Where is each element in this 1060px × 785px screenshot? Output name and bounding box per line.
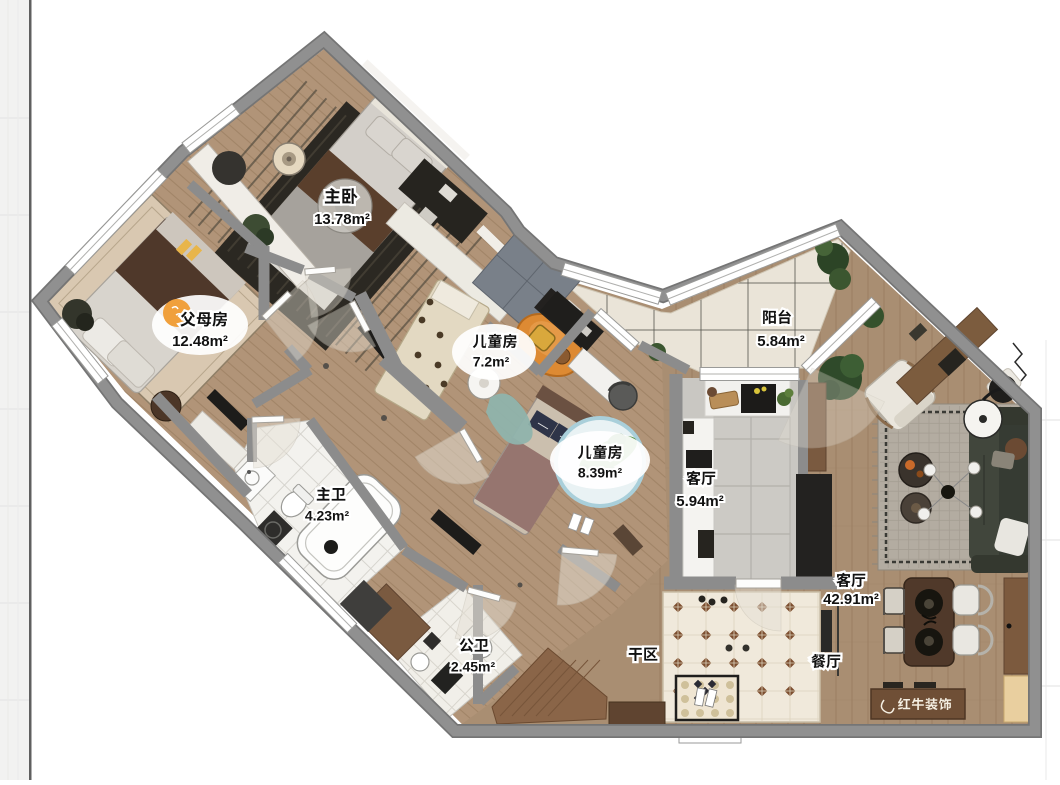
svg-text:8.39m²: 8.39m²	[578, 465, 623, 481]
svg-text:7.2m²: 7.2m²	[473, 354, 510, 370]
svg-text:42.91m²: 42.91m²	[823, 591, 879, 608]
svg-text:2.45m²: 2.45m²	[451, 659, 496, 675]
svg-text:5.84m²: 5.84m²	[757, 333, 805, 350]
svg-text:12.48m²: 12.48m²	[172, 333, 228, 350]
svg-text:5.94m²: 5.94m²	[676, 493, 724, 510]
svg-text:4.23m²: 4.23m²	[305, 508, 350, 524]
svg-text:13.78m²: 13.78m²	[314, 211, 370, 228]
